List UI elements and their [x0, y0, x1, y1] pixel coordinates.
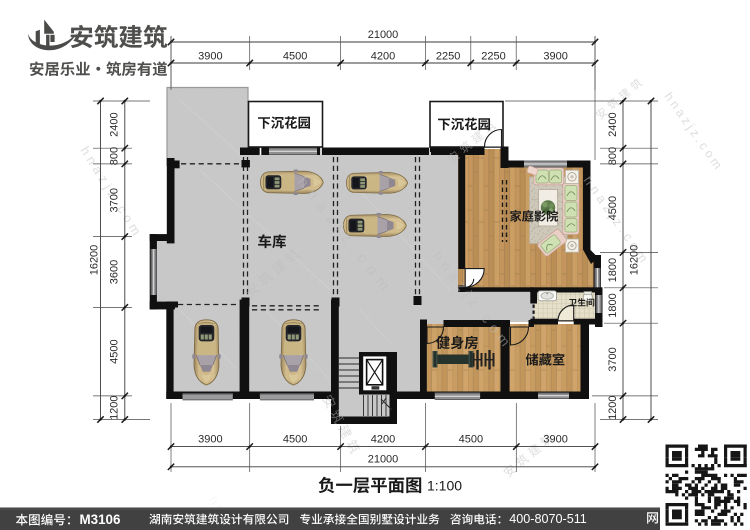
- svg-text:3700: 3700: [607, 347, 619, 371]
- svg-text:3900: 3900: [543, 51, 567, 63]
- svg-text:16200: 16200: [89, 245, 101, 276]
- svg-text:M3106: M3106: [80, 512, 121, 527]
- svg-text:21000: 21000: [368, 29, 399, 41]
- svg-text:4200: 4200: [371, 51, 395, 63]
- svg-text:3900: 3900: [198, 434, 222, 446]
- svg-text:800: 800: [607, 147, 619, 165]
- svg-text:2400: 2400: [109, 112, 121, 136]
- svg-text:4500: 4500: [109, 339, 121, 363]
- svg-text:1200: 1200: [109, 395, 121, 419]
- svg-text:16200: 16200: [629, 245, 641, 276]
- svg-text:21000: 21000: [368, 453, 399, 465]
- svg-text:4500: 4500: [283, 51, 307, 63]
- svg-text:3900: 3900: [543, 434, 567, 446]
- svg-text:2250: 2250: [481, 51, 505, 63]
- svg-text:1800: 1800: [607, 258, 619, 282]
- svg-text:4500: 4500: [607, 196, 619, 220]
- svg-text:1200: 1200: [607, 395, 619, 419]
- svg-text:3700: 3700: [109, 188, 121, 212]
- svg-text:3900: 3900: [198, 51, 222, 63]
- svg-text:4500: 4500: [283, 434, 307, 446]
- svg-text:2250: 2250: [436, 51, 460, 63]
- svg-text:2400: 2400: [607, 112, 619, 136]
- svg-text:4500: 4500: [459, 434, 483, 446]
- svg-text:4200: 4200: [371, 434, 395, 446]
- svg-text:800: 800: [109, 147, 121, 165]
- svg-text:400-8070-511: 400-8070-511: [509, 512, 587, 526]
- svg-text:3600: 3600: [109, 260, 121, 284]
- svg-text:1:100: 1:100: [427, 478, 462, 494]
- svg-text:1800: 1800: [607, 293, 619, 317]
